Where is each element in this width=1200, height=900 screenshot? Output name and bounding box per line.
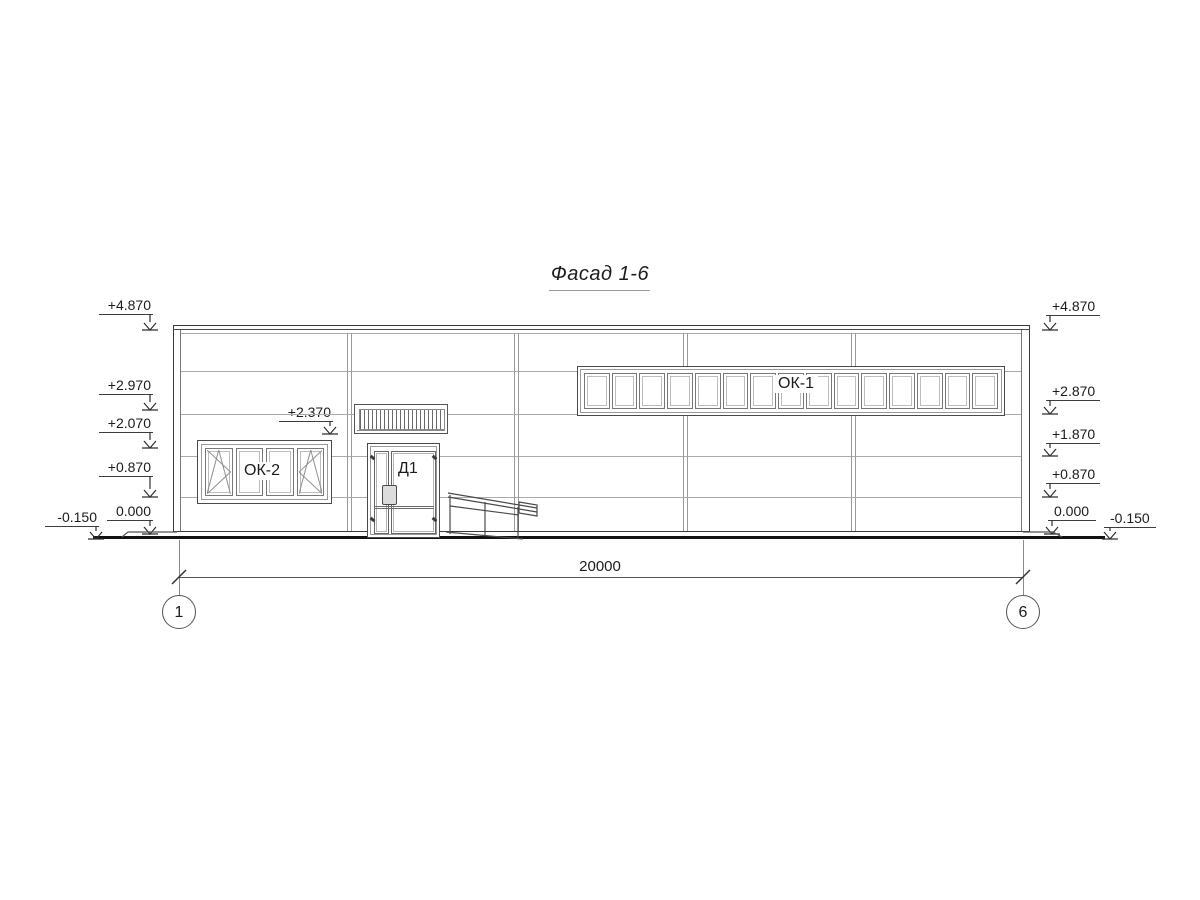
linework-overlay bbox=[0, 0, 1200, 900]
facade-drawing: Фасад 1-6 ОК-1 ОК-2 Д1 bbox=[0, 0, 1200, 900]
dimension-tick-slashes bbox=[172, 570, 1030, 584]
plinth-wedges bbox=[122, 532, 1062, 537]
ramp-railing bbox=[446, 493, 537, 539]
